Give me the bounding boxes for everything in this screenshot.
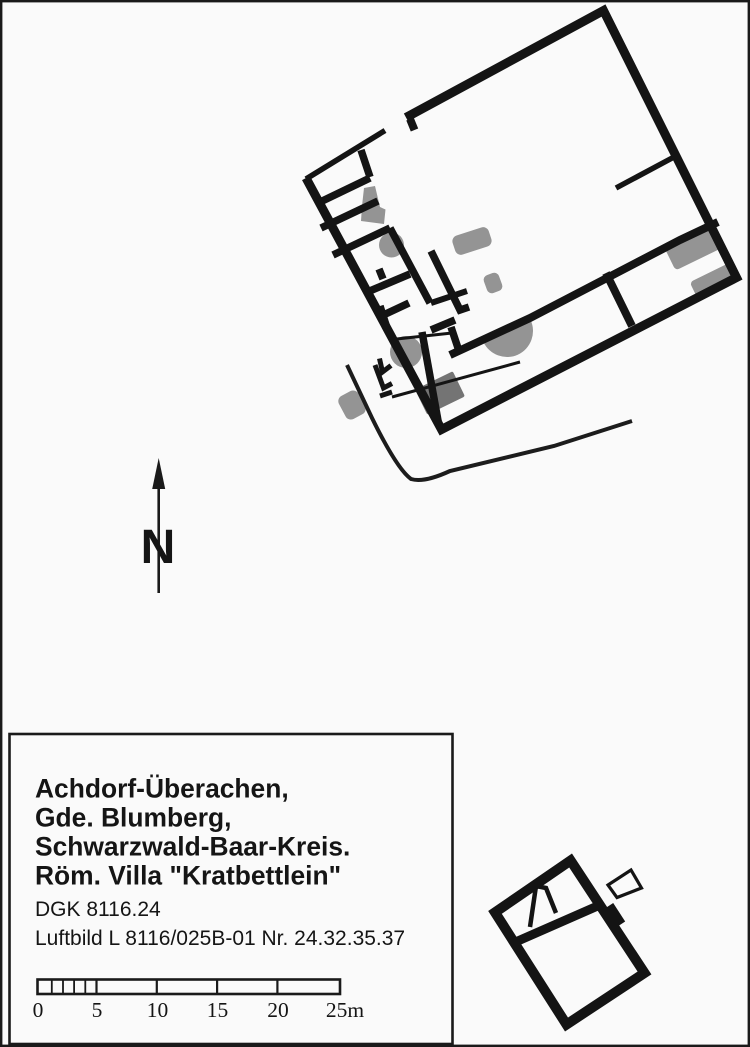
svg-text:0: 0 (33, 998, 44, 1022)
svg-text:20: 20 (267, 998, 289, 1022)
svg-text:25m: 25m (326, 998, 365, 1022)
svg-text:N: N (141, 521, 176, 574)
svg-text:15: 15 (207, 998, 229, 1022)
svg-text:Gde. Blumberg,: Gde. Blumberg, (35, 803, 232, 833)
svg-text:5: 5 (92, 998, 103, 1022)
svg-text:Röm. Villa "Kratbettlein": Röm. Villa "Kratbettlein" (35, 861, 341, 891)
svg-text:Schwarzwald-Baar-Kreis.: Schwarzwald-Baar-Kreis. (35, 832, 350, 862)
svg-text:Luftbild L 8116/025B-01 Nr. 24: Luftbild L 8116/025B-01 Nr. 24.32.35.37 (35, 927, 405, 950)
svg-text:Achdorf-Überachen,: Achdorf-Überachen, (35, 774, 289, 804)
svg-text:DGK 8116.24: DGK 8116.24 (35, 898, 161, 921)
svg-text:10: 10 (147, 998, 169, 1022)
